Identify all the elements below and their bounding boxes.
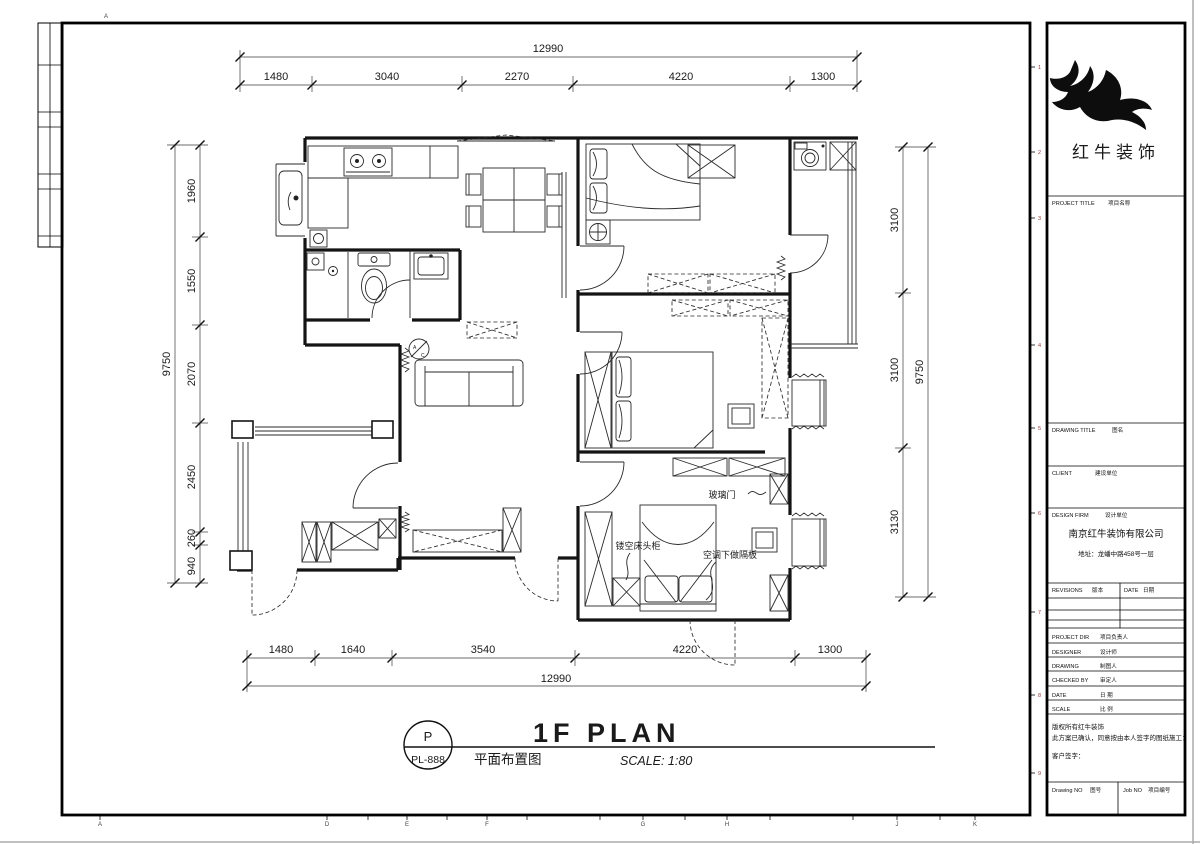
svg-text:日期: 日期: [1143, 587, 1155, 594]
svg-text:建设单位: 建设单位: [1095, 469, 1118, 477]
svg-text:2070: 2070: [186, 362, 198, 386]
svg-text:日 期: 日 期: [1100, 692, 1113, 699]
svg-text:CHECKED BY: CHECKED BY: [1052, 678, 1089, 684]
svg-text:12990: 12990: [541, 673, 572, 685]
svg-text:7: 7: [1038, 610, 1041, 616]
wardrobe-icon: [585, 352, 611, 448]
entry-door-arc: [252, 570, 297, 615]
scale-note: SCALE: 1:80: [620, 754, 692, 768]
bay-window: [238, 442, 248, 551]
floor-plan-sheet: A A D E F G H J K 1 2: [0, 0, 1200, 844]
glass-door-label: 玻璃门: [708, 489, 735, 500]
redniu-logo-mark: [1050, 60, 1152, 130]
ac-symbol: A C: [409, 339, 429, 359]
firm-name: 南京红牛装饰有限公司: [1068, 528, 1163, 540]
study: [230, 421, 398, 615]
toilet-icon: [358, 253, 390, 303]
svg-text:3540: 3540: [471, 644, 495, 656]
svg-text:图名: 图名: [1112, 426, 1123, 434]
stamp-letter: P: [424, 729, 433, 744]
svg-text:版本: 版本: [1092, 586, 1104, 594]
grid-numbers-side: 1 2 3 4 5 6 7 8 9: [1030, 65, 1041, 777]
svg-text:E: E: [405, 822, 409, 828]
svg-text:图号: 图号: [1090, 786, 1102, 794]
svg-text:H: H: [725, 822, 729, 828]
svg-text:DATE: DATE: [1052, 693, 1067, 699]
bay-window: [792, 513, 826, 569]
svg-text:12990: 12990: [533, 43, 564, 55]
svg-text:DESIGN FIRM: DESIGN FIRM: [1052, 513, 1089, 519]
kitchen: [276, 146, 458, 247]
svg-text:3040: 3040: [375, 71, 399, 83]
svg-text:3100: 3100: [889, 208, 901, 232]
plan-title-cn: 平面布置图: [474, 752, 542, 767]
wardrobe-top-icon: [673, 458, 785, 476]
svg-text:CLIENT: CLIENT: [1052, 471, 1072, 477]
floating-nightstand-label: 镂空床头柜: [615, 540, 660, 551]
tall-cabinet-icon: [762, 318, 788, 418]
svg-text:3130: 3130: [889, 510, 901, 534]
low-cabinet-icon: [648, 274, 775, 293]
svg-text:1550: 1550: [186, 269, 198, 293]
stamp-code: PL-888: [411, 754, 445, 766]
door-arc: [580, 246, 624, 290]
bedroom-1: [580, 144, 775, 293]
svg-text:A: A: [413, 345, 417, 351]
ac-shelf-label: 空调下做隔板: [703, 549, 757, 560]
dimension-chains: 12990 1480 3040 2270 4220 1300 1480 1640…: [161, 43, 936, 692]
svg-text:DESIGNER: DESIGNER: [1052, 650, 1081, 656]
bay-window: [792, 374, 826, 429]
ac-shelf-icon: [752, 528, 777, 552]
svg-text:G: G: [641, 822, 646, 828]
plan-title-en: 1F PLAN: [533, 718, 681, 748]
cabinet-icon: [770, 575, 788, 611]
svg-text:9750: 9750: [914, 360, 926, 384]
svg-text:REVISIONS: REVISIONS: [1052, 588, 1083, 594]
svg-text:DRAWING: DRAWING: [1052, 664, 1079, 670]
svg-text:2270: 2270: [505, 71, 529, 83]
door-arc: [580, 462, 624, 506]
svg-text:4220: 4220: [669, 71, 693, 83]
svg-text:3: 3: [1038, 216, 1041, 222]
balcony-window: [790, 142, 858, 348]
svg-text:审定人: 审定人: [1100, 676, 1117, 684]
glass-door-panel: [770, 474, 788, 504]
svg-text:D: D: [325, 822, 330, 828]
shoe-cabinet-icon: [467, 322, 517, 338]
svg-text:DRAWING TITLE: DRAWING TITLE: [1052, 428, 1096, 434]
svg-text:1640: 1640: [341, 644, 365, 656]
fold-strip: [38, 23, 63, 247]
brand-name: 红牛装饰: [1072, 143, 1160, 162]
svg-text:项目编号: 项目编号: [1148, 786, 1171, 794]
svg-text:客户签字：: 客户签字：: [1052, 751, 1085, 760]
bed-icon: [612, 352, 713, 448]
svg-text:Job NO: Job NO: [1123, 788, 1143, 794]
svg-text:A: A: [98, 822, 102, 828]
svg-text:制图人: 制图人: [1100, 662, 1117, 670]
ceiling-symbol: [586, 220, 610, 244]
svg-text:9: 9: [1038, 771, 1041, 777]
svg-text:4: 4: [1038, 343, 1041, 349]
grid-letter-top: A: [104, 14, 108, 20]
door-arc: [353, 463, 398, 508]
svg-text:F: F: [485, 822, 489, 828]
svg-text:SCALE: SCALE: [1052, 707, 1071, 713]
svg-text:比 例: 比 例: [1100, 705, 1113, 713]
nightstand-icon: [728, 404, 754, 428]
svg-text:3100: 3100: [889, 358, 901, 382]
bed-icon: [586, 144, 700, 220]
svg-text:1480: 1480: [269, 644, 293, 656]
wardrobe-icon: [585, 512, 612, 606]
svg-text:J: J: [896, 822, 899, 828]
living-room: A C: [401, 339, 558, 601]
title-block: 红牛装饰 PROJECT TITLE 项目名称 DRAWING TITLE 图名…: [1047, 60, 1189, 815]
window-band: [255, 427, 374, 435]
svg-text:Drawing NO: Drawing NO: [1052, 788, 1083, 794]
nightstand-icon: [613, 578, 640, 606]
tv-cabinet-icon: [413, 508, 521, 552]
firm-address: 地址：龙蟠中路458号一层: [1078, 549, 1154, 558]
svg-text:1300: 1300: [818, 644, 842, 656]
svg-text:此方案已确认，同意按由本人签字的图纸施工：: 此方案已确认，同意按由本人签字的图纸施工：: [1052, 733, 1189, 742]
svg-text:8: 8: [1038, 693, 1041, 699]
wardrobe-icon: [302, 519, 396, 562]
copyright-note: 版权所有红牛装饰: [1052, 722, 1105, 731]
svg-text:2: 2: [1038, 150, 1041, 156]
svg-text:1960: 1960: [186, 179, 198, 203]
svg-text:设计单位: 设计单位: [1105, 511, 1128, 519]
svg-text:5: 5: [1038, 426, 1041, 432]
balcony-door-arc: [790, 235, 828, 273]
bath-sink-icon: [414, 253, 448, 279]
svg-text:PROJECT DIR: PROJECT DIR: [1052, 635, 1089, 641]
svg-text:PROJECT TITLE: PROJECT TITLE: [1052, 201, 1095, 207]
sofa-icon: [415, 360, 523, 406]
kitchen-sink-icon: [279, 171, 302, 225]
svg-text:C: C: [421, 353, 425, 359]
bathroom: [307, 250, 448, 318]
svg-text:1480: 1480: [264, 71, 288, 83]
svg-text:940: 940: [186, 557, 198, 575]
svg-text:项目名称: 项目名称: [1108, 199, 1131, 207]
svg-text:260: 260: [186, 529, 198, 547]
grid-letters-bottom: A D E F G H J K: [98, 815, 977, 828]
svg-text:设计师: 设计师: [1100, 648, 1117, 656]
svg-text:1: 1: [1038, 65, 1041, 71]
dining-area: [457, 135, 566, 338]
svg-text:6: 6: [1038, 511, 1041, 517]
wardrobe-top-icon: [672, 300, 788, 316]
svg-text:1300: 1300: [811, 71, 835, 83]
svg-text:K: K: [973, 822, 977, 828]
svg-text:4220: 4220: [673, 644, 697, 656]
svg-text:DATE: DATE: [1124, 588, 1139, 594]
svg-text:2450: 2450: [186, 465, 198, 489]
floor-plan: 玻璃门 镂空床头柜 空调下做隔板 A C: [230, 135, 858, 665]
drawing-title-bar: P PL-888 1F PLAN 平面布置图 SCALE: 1:80: [404, 718, 935, 769]
washing-machine-icon: [794, 142, 826, 170]
entry-door-arc: [515, 558, 558, 601]
svg-text:9750: 9750: [161, 352, 173, 376]
svg-text:项目负责人: 项目负责人: [1100, 633, 1128, 641]
